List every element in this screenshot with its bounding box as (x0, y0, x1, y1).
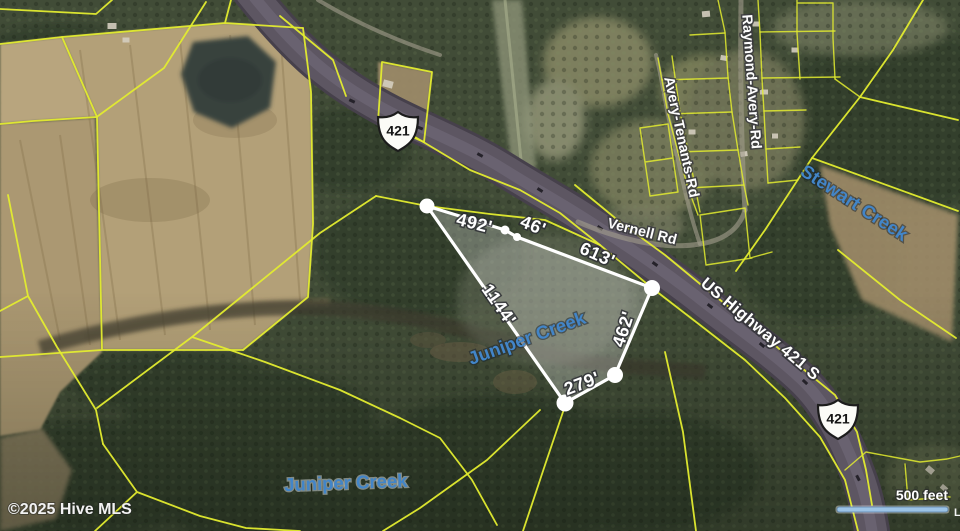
parcel-vertex (607, 367, 623, 383)
parcel-vertex (420, 199, 435, 214)
parcel-vertex (501, 226, 510, 235)
shield-number: 421 (826, 411, 850, 427)
copyright-attribution: ©2025 Hive MLS (8, 501, 132, 518)
attribution-fragment: L (954, 507, 960, 519)
scale-bar (837, 507, 948, 512)
scale-bar-label: 500 feet (896, 487, 948, 503)
map-canvas[interactable]: 492' 46' 613' 1144' 462' 279' Vernell Rd… (0, 0, 960, 531)
parcel-vertex (513, 233, 521, 241)
juniper-creek-label-lower: Juniper Creek (284, 470, 409, 495)
shield-number: 421 (386, 123, 410, 139)
parcel-vertex (644, 280, 660, 296)
